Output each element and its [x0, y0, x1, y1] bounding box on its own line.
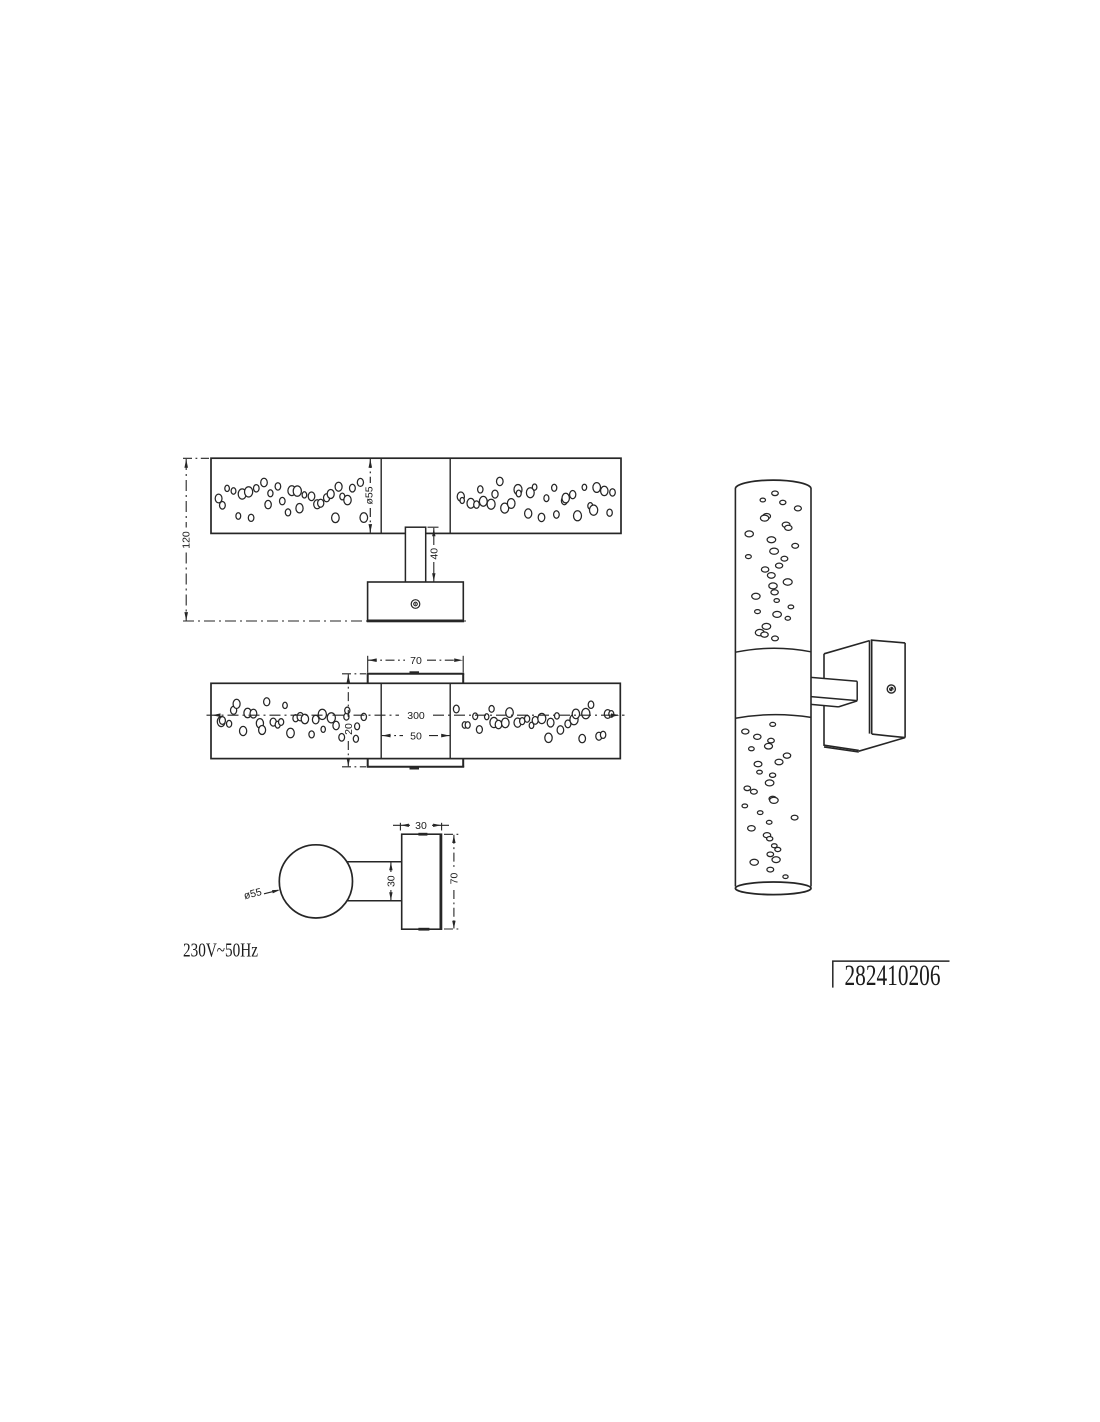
svg-text:230V~50Hz: 230V~50Hz — [183, 940, 258, 962]
svg-text:282410206: 282410206 — [845, 960, 941, 992]
svg-text:40: 40 — [428, 548, 440, 560]
svg-text:30: 30 — [385, 875, 397, 887]
svg-text:ø55: ø55 — [363, 486, 375, 504]
svg-text:20: 20 — [343, 723, 355, 735]
svg-text:120: 120 — [181, 531, 193, 549]
svg-text:70: 70 — [410, 655, 422, 667]
svg-text:ø55: ø55 — [243, 886, 264, 902]
svg-text:30: 30 — [415, 820, 427, 832]
svg-text:70: 70 — [448, 873, 460, 885]
svg-text:50: 50 — [410, 730, 422, 742]
svg-text:300: 300 — [407, 710, 425, 722]
